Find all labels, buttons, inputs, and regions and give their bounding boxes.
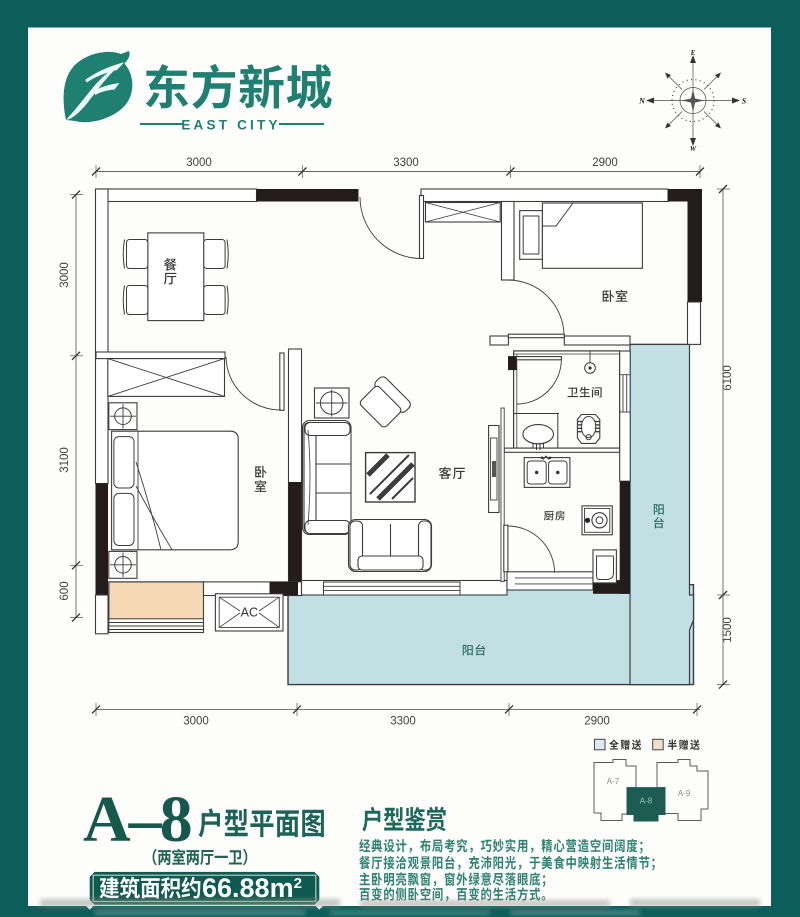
svg-text:W: W — [690, 145, 697, 153]
svg-text:A–8: A–8 — [83, 783, 193, 856]
svg-text:3000: 3000 — [183, 716, 209, 728]
svg-text:6100: 6100 — [722, 365, 734, 391]
svg-text:2900: 2900 — [592, 157, 618, 169]
svg-text:A-9: A-9 — [678, 789, 691, 798]
svg-text:A-7: A-7 — [607, 777, 620, 786]
svg-text:2900: 2900 — [584, 716, 610, 728]
svg-text:3300: 3300 — [390, 716, 416, 728]
svg-text:3100: 3100 — [59, 447, 71, 473]
svg-text:3300: 3300 — [393, 157, 419, 169]
svg-text:3000: 3000 — [186, 157, 212, 169]
svg-text:3000: 3000 — [59, 262, 71, 288]
svg-text:EAST CITY: EAST CITY — [181, 118, 280, 133]
svg-text:AC: AC — [241, 606, 258, 620]
svg-text:A-8: A-8 — [640, 797, 653, 806]
svg-text:600: 600 — [59, 581, 71, 600]
svg-text:E: E — [690, 49, 696, 57]
svg-text:66.88m2: 66.88m2 — [202, 873, 302, 903]
svg-text:1500: 1500 — [722, 617, 734, 643]
svg-text:S: S — [742, 97, 747, 106]
